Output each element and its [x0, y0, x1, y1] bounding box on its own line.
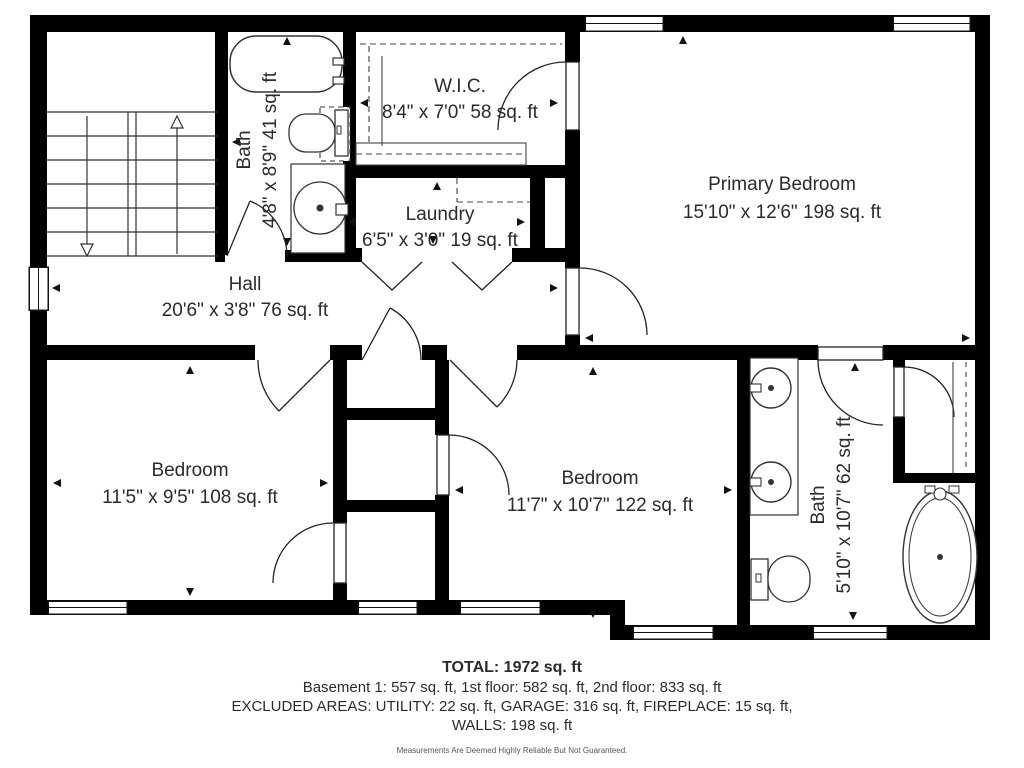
bath-lower-fixtures: [750, 358, 977, 623]
closet-right-door: [894, 367, 954, 417]
bedroom-left-door: [258, 360, 330, 411]
closet-right-interior: [953, 362, 966, 473]
bedroom-right-dims: 11'7" x 10'7" 122 sq. ft: [507, 495, 694, 516]
laundry-dims: 6'5" x 3'0" 19 sq. ft: [362, 230, 519, 251]
sink-drain: [768, 479, 774, 485]
sink-faucet-icon: [750, 478, 761, 486]
total-area: TOTAL: 1972 sq. ft: [0, 658, 1024, 678]
hall-label: Hall: [229, 274, 262, 295]
window: [585, 16, 663, 31]
floor-plan: W.I.C. 8'4" x 7'0" 58 sq. ft Primary Bed…: [0, 0, 1024, 768]
primary-bedroom-label: Primary Bedroom: [708, 174, 856, 195]
bedroom-right-door: [450, 360, 517, 407]
primary-bedroom-door: [566, 268, 647, 335]
floor-areas: Basement 1: 557 sq. ft, 1st floor: 582 s…: [0, 678, 1024, 697]
laundry-bifold-doors: [362, 262, 512, 290]
window: [29, 267, 48, 310]
window: [893, 16, 970, 31]
window: [48, 601, 127, 614]
walls-area: WALLS: 198 sq. ft: [0, 716, 1024, 735]
area-summary: TOTAL: 1972 sq. ft Basement 1: 557 sq. f…: [0, 658, 1024, 755]
laundry-label: Laundry: [406, 204, 475, 225]
sink-drain: [317, 205, 324, 212]
bath-lower-label: Bath: [808, 485, 829, 524]
bath-upper-dims: 4'8" x 8'9" 41 sq. ft: [260, 71, 281, 228]
tub-faucet-icon: [333, 77, 344, 84]
bath-upper-label: Bath: [234, 130, 255, 169]
laundry-appliance-dashed: [457, 178, 530, 202]
bath-lower-door: [818, 347, 883, 425]
window: [460, 601, 540, 614]
toilet-bowl-icon: [768, 556, 810, 602]
bedroom-right-label: Bedroom: [561, 468, 638, 489]
primary-bedroom-dims: 15'10" x 12'6" 198 sq. ft: [683, 202, 882, 223]
tub-faucet-icon: [925, 486, 935, 493]
sink-faucet-icon: [336, 204, 348, 215]
wic-label: W.I.C.: [434, 76, 486, 97]
hall-dims: 20'6" x 3'8" 76 sq. ft: [162, 300, 329, 321]
floor-plan-drawing: W.I.C. 8'4" x 7'0" 58 sq. ft Primary Bed…: [0, 0, 1024, 768]
staircase: [47, 112, 218, 256]
toilet-handle-icon: [756, 574, 761, 582]
window: [813, 626, 887, 639]
toilet-handle-icon: [337, 126, 341, 134]
tub-drain: [937, 554, 943, 560]
dimension-arrows: [52, 36, 970, 620]
sink-drain: [768, 385, 774, 391]
closet-middle-door: [437, 435, 509, 495]
sink-faucet-icon: [750, 384, 761, 392]
hall-closet-door: [362, 308, 421, 360]
disclaimer-text: Measurements Are Deemed Highly Reliable …: [0, 746, 1024, 755]
bedroom-left-dims: 11'5" x 9'5" 108 sq. ft: [102, 487, 278, 508]
wic-dims: 8'4" x 7'0" 58 sq. ft: [382, 102, 539, 123]
tub-spout-icon: [934, 488, 946, 500]
tub-faucet-icon: [333, 58, 344, 65]
excluded-areas: EXCLUDED AREAS: UTILITY: 22 sq. ft, GARA…: [0, 697, 1024, 716]
window: [633, 626, 713, 639]
bedroom-left-label: Bedroom: [151, 460, 228, 481]
stair-arrow-up-head: [171, 116, 183, 128]
stair-treads: [47, 112, 218, 256]
stair-arrow-down-head: [81, 244, 93, 256]
window: [358, 601, 417, 614]
closet-bottom-door: [273, 523, 346, 583]
tub-faucet-icon: [949, 486, 959, 493]
bath-lower-dims: 5'10" x 10'7" 62 sq. ft: [834, 416, 855, 594]
toilet-bowl-icon: [289, 114, 335, 152]
